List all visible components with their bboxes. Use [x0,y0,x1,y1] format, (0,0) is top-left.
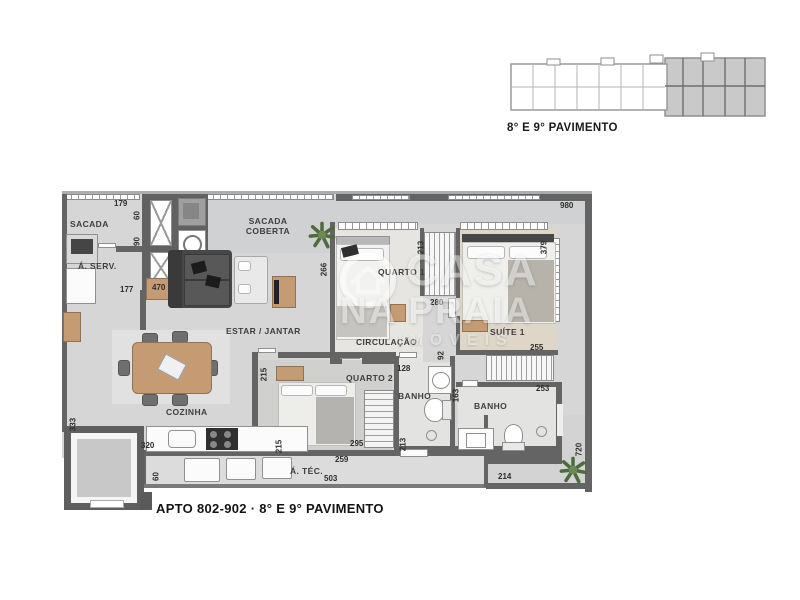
toilet-tank [502,442,525,451]
room-label-estar-jantar: ESTAR / JANTAR [226,326,301,336]
tv-icon [274,280,279,304]
key-plan: 8° E 9° PAVIMENTO [505,50,773,122]
window [338,222,418,230]
room-label-sacada: SACADA [70,219,109,229]
elevator-shaft-icon [150,200,172,246]
floor-plan-sheet: 8° E 9° PAVIMENTO [0,0,800,600]
shaft-floor [77,439,131,497]
dimension-label: 295 [350,439,363,448]
room-label-sacada-coberta: SACADA COBERTA [236,216,300,236]
dimension-label: 92 [437,341,446,371]
kitchen-sink-icon [168,430,196,448]
niche [557,404,563,436]
dimension-label: 177 [120,285,133,294]
sofa-backrest [168,250,182,308]
wall [456,228,460,298]
door-leaf [98,243,116,248]
shower-drain-icon [426,430,437,441]
bench [462,320,488,332]
dimension-label: 215 [275,432,284,462]
door-leaf [448,298,456,318]
plan-caption: APTO 802-902 · 8° E 9° PAVIMENTO [156,501,384,516]
duct-inner [183,203,199,219]
bed-blanket [316,397,354,444]
dimension-label: 259 [335,455,348,464]
dimension-label: 255 [530,343,543,352]
sink-icon [432,372,450,389]
dimension-label: 379 [540,233,549,263]
dimension-label: 90 [133,227,142,257]
room-label-circulacao: CIRCULAÇÃO [356,337,417,347]
dimension-label: 60 [152,462,161,492]
throw-pillow [238,284,251,294]
wall [456,316,460,354]
closet-suite [486,355,554,381]
door-leaf [462,380,478,387]
dimension-label: 163 [452,381,461,411]
dimension-label: 213 [417,233,426,263]
balcony-rail [206,194,334,200]
dimension-label: 470 [152,283,165,292]
shower-head-icon [536,426,547,437]
dimension-label: 266 [320,255,329,285]
ac-unit [184,458,220,482]
wall [140,484,490,488]
room-label-cozinha: COZINHA [166,407,208,417]
window [448,195,540,200]
ac-unit [226,458,256,480]
plant-icon [308,220,336,250]
room-label-a-serv: Á. SERV. [78,261,117,271]
room-label-suite1: SUÍTE 1 [490,327,525,337]
dimension-label: 128 [397,364,410,373]
dimension-label: 179 [114,199,127,208]
toilet-tank [442,400,452,420]
window [460,222,548,230]
plant-icon [558,456,588,484]
room-label-quarto1: QUARTO 1 [378,267,425,277]
dimension-label: 333 [69,410,78,440]
toilet-icon [424,398,444,422]
wall [362,358,396,364]
sink-icon [466,433,486,448]
dimension-label: 320 [141,441,154,450]
cabinet [63,312,81,342]
shaft-notch [90,500,124,508]
laundry-tank-icon [66,268,96,304]
bed-blanket [337,306,387,337]
wall [585,194,592,492]
bed-runner [508,260,554,322]
wall [278,352,396,358]
door-leaf [399,352,417,358]
dimension-label: 280 [430,298,443,307]
dimension-label: 720 [575,435,584,465]
room-label-a-tec: Á. TÉC. [290,466,323,476]
wall [488,446,562,464]
window [352,195,410,200]
wall [484,415,488,487]
wall [252,352,256,358]
dimension-label: 213 [399,430,408,460]
dimension-label: 214 [498,472,511,481]
wall-corner-block [140,492,152,510]
key-plan-caption: 8° E 9° PAVIMENTO [507,122,618,134]
dimension-label: 503 [324,474,337,483]
room-label-banho1: BANHO [398,391,431,401]
nightstand [276,366,304,381]
nightstand [390,304,406,322]
dimension-label: 253 [536,384,549,393]
room-label-banho2: BANHO [474,401,507,411]
dimension-label: 980 [560,201,573,210]
wardrobe-quarto2 [364,390,394,448]
key-plan-drawing [505,50,773,122]
throw-pillow [238,261,251,271]
closet-quarto1 [424,232,456,296]
room-label-quarto2: QUARTO 2 [346,373,393,383]
door-leaf [258,348,276,353]
floor-balcony-top [335,198,585,224]
wall [428,450,490,456]
washer-drum [71,239,93,254]
balcony-rail [64,194,140,200]
dimension-label: 215 [260,360,269,390]
